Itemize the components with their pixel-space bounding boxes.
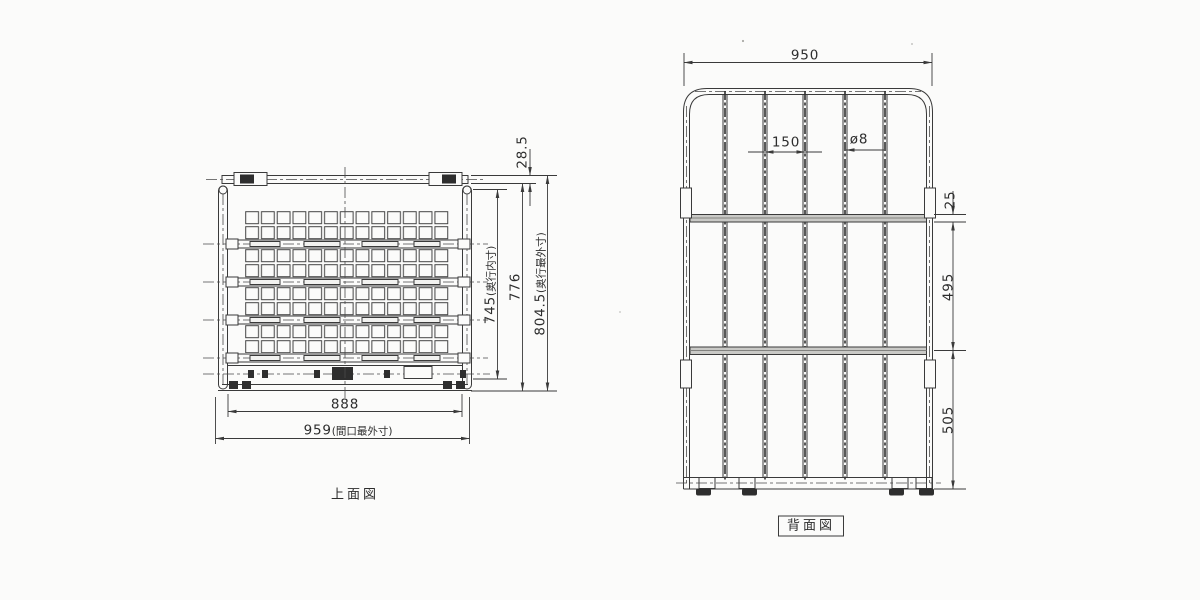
drawing-line-art (0, 0, 1200, 600)
dim-rear-width: 950 (791, 49, 819, 63)
dim-rear-upper-span: 495 (942, 273, 956, 301)
name-plate (332, 367, 353, 380)
dim-note: (奥行内寸) (485, 246, 497, 296)
rear-view-drawing (676, 89, 941, 496)
dim-rear-lower-span: 505 (942, 406, 956, 434)
cross-bar (203, 277, 488, 287)
dim-note: (奥行最外寸) (535, 232, 547, 293)
dim-value: 804.5 (532, 293, 548, 336)
dim-note: (間口最外寸) (332, 425, 393, 437)
dim-top-offset: 28.5 (516, 135, 530, 168)
bottom-rail (203, 366, 490, 391)
cross-bar (203, 353, 488, 363)
cross-bar (203, 239, 488, 249)
dim-top-inner-depth: 745(奥行内寸) (484, 246, 498, 324)
dim-value: 745 (482, 296, 498, 324)
scan-artifacts (619, 40, 913, 313)
rear-view-dimension-lines (684, 53, 966, 489)
rear-view-label: 背面図 (778, 516, 844, 537)
dim-rear-bar-diameter: ø8 (850, 133, 868, 147)
top-view-label: 上面図 (331, 489, 379, 502)
dim-value: 959 (304, 422, 332, 438)
cross-bar (203, 315, 488, 325)
dim-top-inner-width: 888 (331, 398, 359, 412)
dim-rear-bar-pitch: 150 (772, 136, 800, 150)
top-view-drawing (203, 167, 490, 399)
latch-plate (404, 367, 432, 379)
dim-rear-bar-thickness: 25 (944, 191, 958, 210)
engineering-drawing-page: { "meta": { "background": "#fbfbfa", "in… (0, 0, 1200, 600)
dim-top-outer-width: 959(間口最外寸) (304, 424, 393, 438)
vertical-rods (723, 91, 887, 481)
dim-top-mid-depth: 776 (509, 273, 523, 301)
dim-top-outer-depth: 804.5(奥行最外寸) (534, 232, 548, 335)
base-and-casters (676, 478, 941, 496)
